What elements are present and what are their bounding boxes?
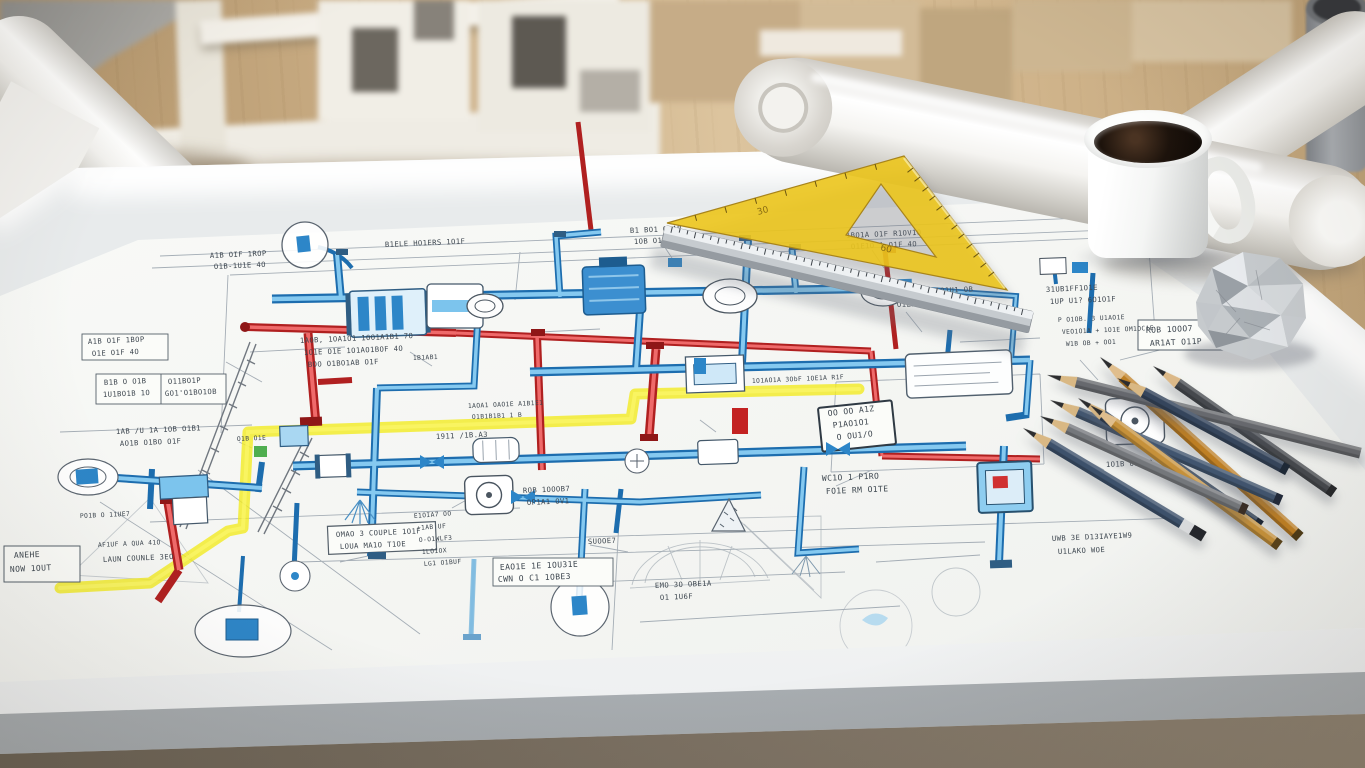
drafting-scene: A1B OIF 1ROP O1B-1U1E 4O B1ELE HO1ERS 1O… [0, 0, 1365, 768]
